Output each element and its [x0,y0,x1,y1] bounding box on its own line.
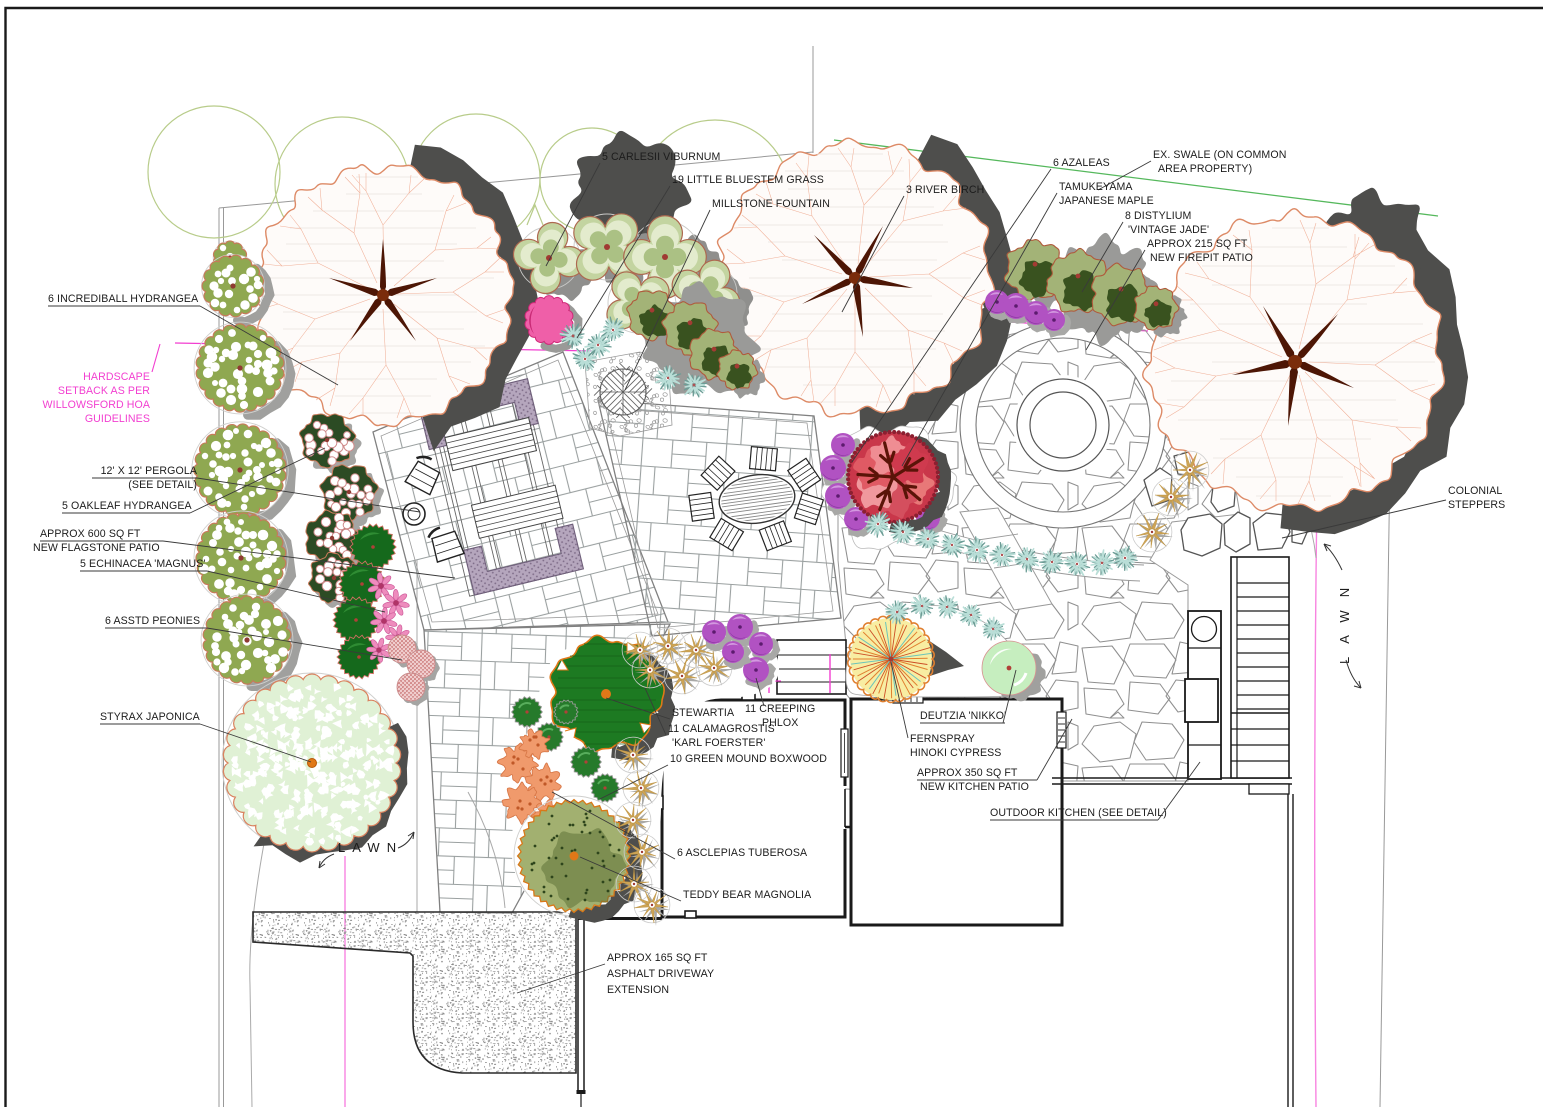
svg-text:6 ASCLEPIAS TUBEROSA: 6 ASCLEPIAS TUBEROSA [677,847,808,859]
svg-text:STEWARTIA: STEWARTIA [672,707,735,719]
svg-text:GUIDELINES: GUIDELINES [85,413,150,425]
svg-text:STYRAX JAPONICA: STYRAX JAPONICA [100,711,201,723]
svg-text:TEDDY BEAR MAGNOLIA: TEDDY BEAR MAGNOLIA [683,889,812,901]
svg-text:MILLSTONE FOUNTAIN: MILLSTONE FOUNTAIN [712,198,830,210]
svg-text:HARDSCAPE: HARDSCAPE [83,371,150,383]
svg-text:6 INCREDIBALL HYDRANGEA: 6 INCREDIBALL HYDRANGEA [48,293,199,305]
svg-text:5 OAKLEAF HYDRANGEA: 5 OAKLEAF HYDRANGEA [62,500,192,512]
svg-text:3 RIVER BIRCH: 3 RIVER BIRCH [906,184,984,196]
svg-text:12' X 12' PERGOLA: 12' X 12' PERGOLA [101,465,198,477]
svg-text:11 CALAMAGROSTIS: 11 CALAMAGROSTIS [668,723,775,735]
svg-text:'VINTAGE JADE': 'VINTAGE JADE' [1128,224,1209,236]
svg-text:APPROX 165 SQ FT: APPROX 165 SQ FT [607,952,708,964]
svg-text:ASPHALT DRIVEWAY: ASPHALT DRIVEWAY [607,968,714,980]
svg-text:NEW FLAGSTONE PATIO: NEW FLAGSTONE PATIO [33,542,160,554]
svg-text:APPROX 350 SQ FT: APPROX 350 SQ FT [917,767,1018,779]
svg-text:TAMUKEYAMA: TAMUKEYAMA [1059,181,1133,193]
svg-text:APPROX 600 SQ FT: APPROX 600 SQ FT [40,528,141,540]
svg-text:NEW KITCHEN PATIO: NEW KITCHEN PATIO [920,781,1029,793]
svg-text:11 CREEPING: 11 CREEPING [745,703,815,715]
svg-text:19 LITTLE BLUESTEM GRASS: 19 LITTLE BLUESTEM GRASS [672,174,824,186]
svg-text:EX. SWALE (ON COMMON: EX. SWALE (ON COMMON [1153,149,1286,161]
svg-text:AREA PROPERTY): AREA PROPERTY) [1158,163,1252,175]
svg-text:OUTDOOR KITCHEN (SEE DETAIL): OUTDOOR KITCHEN (SEE DETAIL) [990,807,1167,819]
svg-text:APPROX 215 SQ FT: APPROX 215 SQ FT [1147,238,1248,250]
svg-text:COLONIAL: COLONIAL [1448,485,1502,497]
svg-text:10 GREEN MOUND BOXWOOD: 10 GREEN MOUND BOXWOOD [670,753,827,765]
svg-text:WILLOWSFORD HOA: WILLOWSFORD HOA [43,399,151,411]
svg-text:SETBACK AS PER: SETBACK AS PER [58,385,150,397]
svg-text:(SEE DETAIL): (SEE DETAIL) [128,479,197,491]
svg-text:6 AZALEAS: 6 AZALEAS [1053,157,1110,169]
svg-text:JAPANESE MAPLE: JAPANESE MAPLE [1059,195,1154,207]
svg-text:HINOKI CYPRESS: HINOKI CYPRESS [910,747,1001,759]
svg-text:STEPPERS: STEPPERS [1448,499,1505,511]
svg-text:5 CARLESII VIBURNUM: 5 CARLESII VIBURNUM [602,151,720,163]
svg-text:LAWN: LAWN [338,840,403,855]
svg-text:DEUTZIA 'NIKKO': DEUTZIA 'NIKKO' [920,710,1006,722]
svg-text:5 ECHINACEA 'MAGNUS': 5 ECHINACEA 'MAGNUS' [80,558,206,570]
svg-text:NEW FIREPIT PATIO: NEW FIREPIT PATIO [1150,252,1253,264]
svg-text:FERNSPRAY: FERNSPRAY [910,733,975,745]
svg-text:6 ASSTD PEONIES: 6 ASSTD PEONIES [105,615,200,627]
svg-text:8 DISTYLIUM: 8 DISTYLIUM [1125,210,1191,222]
svg-text:EXTENSION: EXTENSION [607,984,669,996]
svg-text:'KARL FOERSTER': 'KARL FOERSTER' [672,737,765,749]
svg-text:LAWN: LAWN [1337,575,1352,664]
